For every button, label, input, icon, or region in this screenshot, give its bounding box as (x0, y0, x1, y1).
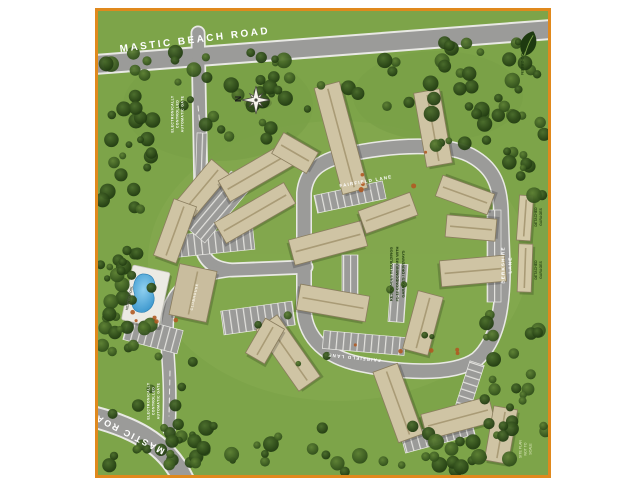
site-plan-page: MASTIC BEACH ROAD MASTIC ROAD FAIRFIELD … (0, 0, 640, 480)
site-plan-art (98, 11, 548, 475)
site-plan-map[interactable]: MASTIC BEACH ROAD MASTIC ROAD FAIRFIELD … (95, 8, 551, 478)
